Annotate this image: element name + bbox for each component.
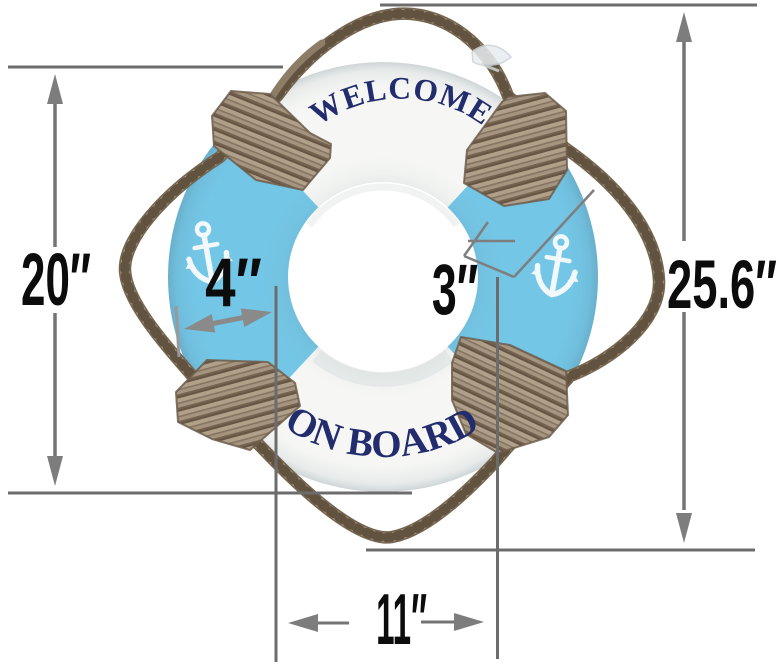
svg-text:25.6″: 25.6″ bbox=[667, 247, 777, 324]
svg-text:20″: 20″ bbox=[21, 238, 91, 321]
svg-text:11″: 11″ bbox=[376, 578, 427, 659]
svg-text:3″: 3″ bbox=[432, 249, 478, 329]
svg-text:4″: 4″ bbox=[205, 245, 262, 321]
